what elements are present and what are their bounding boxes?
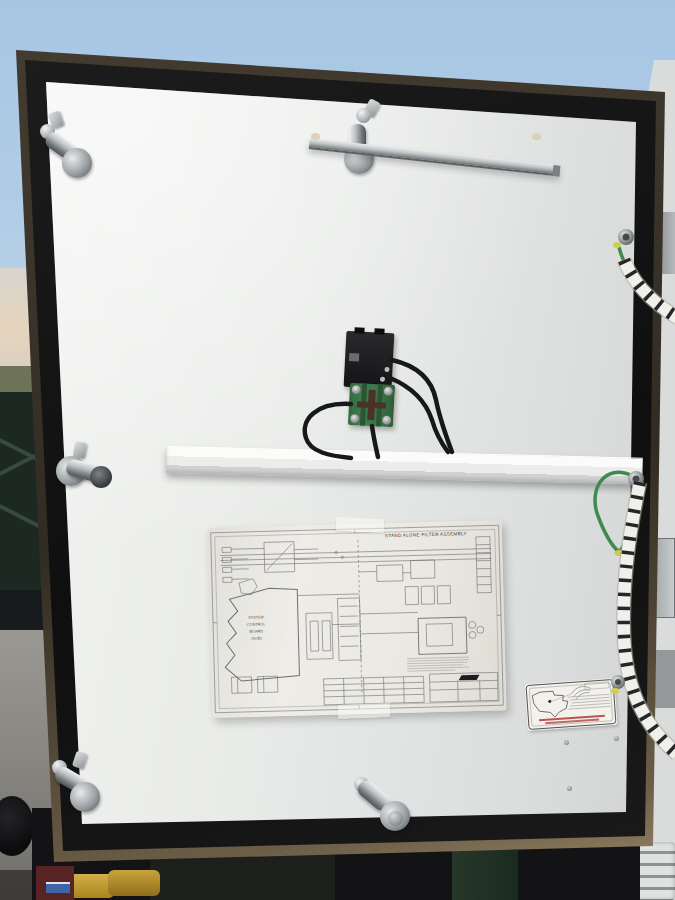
- latch-hex-nut: [388, 811, 403, 826]
- terminal-screw: [350, 414, 359, 423]
- terminal-screw: [382, 416, 391, 425]
- connector-lobe: [108, 870, 160, 896]
- blue-label: [46, 882, 70, 893]
- latch-flange: [70, 782, 100, 812]
- relay-pin: [380, 377, 385, 382]
- adhesive-residue: [311, 133, 320, 140]
- latch-flange: [62, 148, 92, 178]
- red-terminal-block: [36, 866, 74, 900]
- yellow-cable-connector: [68, 870, 160, 900]
- wiring-diagram-paper: STAND ALONE FILTER ASSEMBLY SYSTEM CONTR…: [208, 520, 507, 718]
- title-block-logo: [459, 675, 480, 681]
- clear-tape: [338, 703, 390, 719]
- door-latch-middle-left: [52, 440, 118, 506]
- latch-handle: [72, 751, 88, 770]
- terminal-screw: [352, 385, 361, 394]
- schematic-title: STAND ALONE FILTER ASSEMBLY: [385, 531, 467, 538]
- green-terminal-block: [348, 383, 395, 427]
- latch-ring: [90, 466, 112, 488]
- bar-end-cap: [552, 165, 560, 177]
- photo-scene: STAND ALONE FILTER ASSEMBLY SYSTEM CONTR…: [0, 0, 675, 900]
- scb-block-outline: [223, 588, 299, 682]
- svg-text:CONTROL: CONTROL: [247, 622, 266, 626]
- sticker-graphic: [524, 678, 617, 731]
- relay-tab: [354, 327, 364, 334]
- door-latch-bottom-center: [348, 775, 414, 841]
- door-latch-bottom-left: [44, 752, 110, 818]
- svg-text:SYSTEM: SYSTEM: [248, 615, 264, 619]
- terminal-screw: [384, 387, 393, 396]
- face-screw: [564, 740, 569, 745]
- face-screw: [567, 786, 572, 791]
- relay-tab: [374, 328, 384, 335]
- notes-block: [407, 657, 469, 671]
- latch-knob: [356, 108, 371, 123]
- made-in-usa-sticker: [524, 678, 617, 731]
- adhesive-residue: [532, 133, 541, 140]
- door-latch-top-left: [34, 112, 100, 178]
- clear-tape: [336, 517, 385, 533]
- svg-text:BOARD: BOARD: [249, 629, 263, 633]
- relay-connector: [344, 331, 395, 389]
- flag-stripes: [567, 694, 610, 709]
- schematic-drawing: STAND ALONE FILTER ASSEMBLY SYSTEM CONTR…: [208, 520, 507, 718]
- location-dot: [548, 700, 551, 703]
- scb-block-label: SYSTEM CONTROL BOARD (SCB): [247, 615, 266, 640]
- usa-map-outline: [532, 690, 569, 718]
- relay-pin: [384, 367, 389, 372]
- relay-slot: [349, 353, 359, 362]
- green-support-post: [452, 846, 518, 900]
- face-screw: [614, 736, 619, 741]
- svg-text:(SCB): (SCB): [251, 636, 262, 640]
